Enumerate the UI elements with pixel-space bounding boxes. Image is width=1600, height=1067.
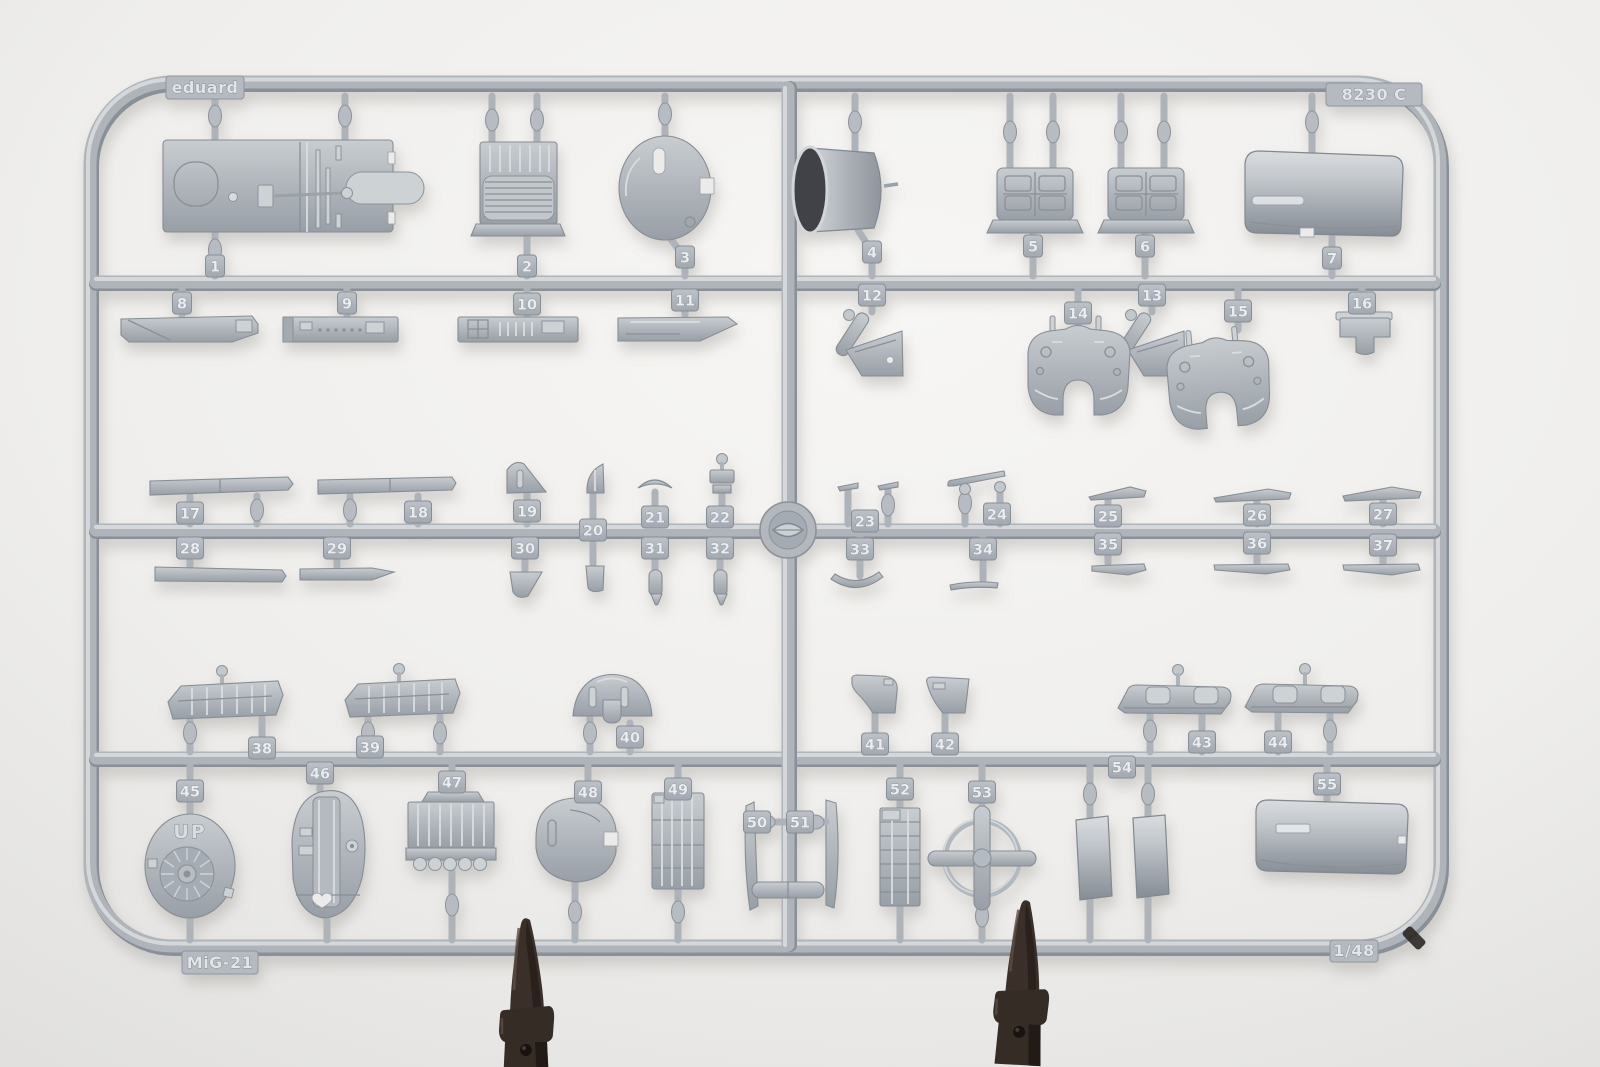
sprue-code-tag: 8230 C: [1326, 83, 1422, 106]
part-5-canopy-frame-insert: [987, 168, 1083, 233]
part-45-wheel-hub-disc: UP: [145, 814, 235, 918]
model-label-tag: MiG-21: [182, 951, 258, 974]
part-number-tag-54: 54: [1109, 756, 1136, 778]
svg-text:29: 29: [327, 542, 347, 558]
svg-text:44: 44: [1268, 736, 1288, 752]
part-48-oval-door: [536, 798, 618, 882]
part-number-tag-11: 11: [672, 289, 699, 311]
svg-text:41: 41: [865, 738, 885, 754]
svg-text:3: 3: [680, 251, 690, 267]
svg-text:46: 46: [310, 767, 330, 783]
part-number-tag-28: 28: [177, 537, 204, 559]
part-number-tag-45: 45: [177, 780, 204, 802]
part-number-tag-19: 19: [514, 500, 541, 522]
svg-text:49: 49: [668, 783, 688, 799]
part-number-tag-12: 12: [859, 284, 886, 306]
svg-text:27: 27: [1373, 508, 1393, 524]
part-55-fuselage-skin-panel: [1256, 800, 1408, 874]
svg-text:26: 26: [1247, 509, 1267, 525]
part-2-radiator-grille: [471, 142, 565, 236]
svg-text:17: 17: [180, 507, 200, 523]
svg-text:12: 12: [862, 289, 882, 305]
part-number-tag-43: 43: [1189, 731, 1216, 753]
svg-text:51: 51: [790, 816, 810, 832]
part-8-fuselage-strip: [121, 316, 258, 342]
scale-label-text: 1/48: [1333, 941, 1374, 960]
svg-text:20: 20: [583, 524, 603, 540]
part-number-tag-16: 16: [1349, 292, 1376, 314]
svg-text:31: 31: [645, 542, 665, 558]
svg-text:16: 16: [1352, 297, 1372, 313]
svg-text:43: 43: [1192, 736, 1212, 752]
svg-text:36: 36: [1247, 537, 1267, 553]
part-number-tag-18: 18: [405, 501, 432, 523]
part-number-tag-44: 44: [1265, 731, 1292, 753]
svg-text:8: 8: [177, 297, 187, 313]
svg-text:2: 2: [522, 260, 532, 276]
part-number-tag-47: 47: [439, 771, 466, 793]
part-number-tag-15: 15: [1225, 300, 1252, 322]
svg-text:53: 53: [972, 786, 992, 802]
part-number-tag-41: 41: [862, 733, 889, 755]
svg-text:5: 5: [1028, 240, 1038, 256]
part-number-tag-7: 7: [1323, 247, 1342, 269]
part-number-tag-30: 30: [512, 537, 539, 559]
runner-row-2: [96, 279, 1434, 284]
brand-label-tag: eduard: [166, 76, 244, 99]
part-number-tag-33: 33: [847, 538, 874, 560]
svg-text:50: 50: [747, 816, 767, 832]
scale-label-tag: 1/48: [1330, 940, 1378, 962]
svg-text:6: 6: [1140, 240, 1150, 256]
part-number-tag-35: 35: [1095, 533, 1122, 555]
center-hub-medallion: [760, 502, 816, 558]
part-number-tag-25: 25: [1095, 505, 1122, 527]
part-number-tag-38: 38: [249, 737, 276, 759]
svg-text:9: 9: [342, 297, 352, 313]
svg-text:24: 24: [987, 508, 1007, 524]
svg-text:42: 42: [935, 738, 955, 754]
part-number-tag-42: 42: [932, 733, 959, 755]
part-number-tag-10: 10: [514, 293, 541, 315]
part-number-tag-3: 3: [676, 246, 695, 268]
svg-text:55: 55: [1317, 778, 1337, 794]
svg-text:40: 40: [620, 731, 640, 747]
part-number-tag-39: 39: [357, 736, 384, 758]
part-number-tag-55: 55: [1314, 773, 1341, 795]
part-number-tag-14: 14: [1065, 302, 1092, 324]
svg-text:25: 25: [1098, 510, 1118, 526]
svg-text:10: 10: [517, 298, 537, 314]
part-1-cockpit-floor-panel: [163, 140, 424, 232]
part-number-tag-4: 4: [863, 241, 882, 263]
svg-text:4: 4: [867, 246, 877, 262]
svg-text:19: 19: [517, 505, 537, 521]
part-10-fuselage-strip: [458, 317, 578, 342]
part-number-tag-46: 46: [307, 762, 334, 784]
svg-text:47: 47: [442, 776, 462, 792]
svg-text:14: 14: [1068, 307, 1088, 323]
svg-text:21: 21: [645, 511, 665, 527]
sprue-code-text: 8230 C: [1342, 85, 1407, 104]
brand-label-text: eduard: [172, 78, 239, 97]
part-47-ribbed-bay-insert: [406, 792, 496, 871]
part-9-fuselage-strip: [283, 317, 398, 342]
part-number-tag-29: 29: [324, 537, 351, 559]
svg-text:54: 54: [1112, 761, 1132, 777]
part-number-tag-21: 21: [642, 506, 669, 528]
part-number-tag-26: 26: [1244, 504, 1271, 526]
svg-text:7: 7: [1327, 252, 1337, 268]
svg-text:38: 38: [252, 742, 272, 758]
svg-text:11: 11: [675, 294, 695, 310]
part-number-tag-36: 36: [1244, 532, 1271, 554]
svg-text:1: 1: [210, 260, 220, 276]
part-number-tag-34: 34: [970, 538, 997, 560]
part-number-tag-37: 37: [1370, 534, 1397, 556]
svg-text:18: 18: [408, 506, 428, 522]
svg-text:52: 52: [890, 783, 910, 799]
part-number-tag-8: 8: [173, 292, 192, 314]
part-52-riveted-panel: [880, 808, 920, 906]
part-number-tag-50: 50: [744, 811, 771, 833]
part-number-tag-13: 13: [1139, 284, 1166, 306]
part-number-tag-52: 52: [887, 778, 914, 800]
part-number-tag-5: 5: [1024, 235, 1043, 257]
part-number-tag-27: 27: [1370, 503, 1397, 525]
part-number-tag-17: 17: [177, 502, 204, 524]
part-number-tag-53: 53: [969, 781, 996, 803]
part-number-tag-23: 23: [852, 510, 879, 532]
svg-text:35: 35: [1098, 538, 1118, 554]
svg-text:34: 34: [973, 543, 993, 559]
svg-text:48: 48: [578, 786, 598, 802]
part-number-tag-32: 32: [707, 537, 734, 559]
part-number-tag-31: 31: [642, 537, 669, 559]
svg-text:28: 28: [180, 542, 200, 558]
part-7-fuselage-skin-panel: [1245, 151, 1403, 237]
part-number-tag-22: 22: [707, 506, 734, 528]
svg-text:33: 33: [850, 543, 870, 559]
part-number-tag-49: 49: [665, 778, 692, 800]
runner-row-4: [96, 755, 1434, 760]
part-number-tag-20: 20: [580, 519, 607, 541]
part-number-tag-9: 9: [338, 292, 357, 314]
sprue-photo: UP: [0, 0, 1600, 1067]
svg-text:39: 39: [360, 741, 380, 757]
model-label-text: MiG-21: [187, 953, 253, 972]
part-6-canopy-frame-insert: [1098, 168, 1194, 233]
part-45-up-marking: UP: [173, 821, 206, 843]
part-number-tag-6: 6: [1136, 235, 1155, 257]
svg-text:22: 22: [710, 511, 730, 527]
part-number-tag-48: 48: [575, 781, 602, 803]
part-number-tag-1: 1: [206, 255, 225, 277]
svg-text:45: 45: [180, 785, 200, 801]
part-number-tag-2: 2: [518, 255, 537, 277]
svg-text:32: 32: [710, 542, 730, 558]
part-number-tag-40: 40: [617, 726, 644, 748]
svg-text:37: 37: [1373, 539, 1393, 555]
svg-text:30: 30: [515, 542, 535, 558]
part-number-tag-24: 24: [984, 503, 1011, 525]
part-49-louvered-panel: [652, 793, 704, 889]
svg-text:23: 23: [855, 515, 875, 531]
svg-text:13: 13: [1142, 289, 1162, 305]
part-46-ejection-seat-panel: [292, 791, 365, 918]
svg-text:15: 15: [1228, 305, 1248, 321]
part-number-tag-51: 51: [787, 811, 814, 833]
